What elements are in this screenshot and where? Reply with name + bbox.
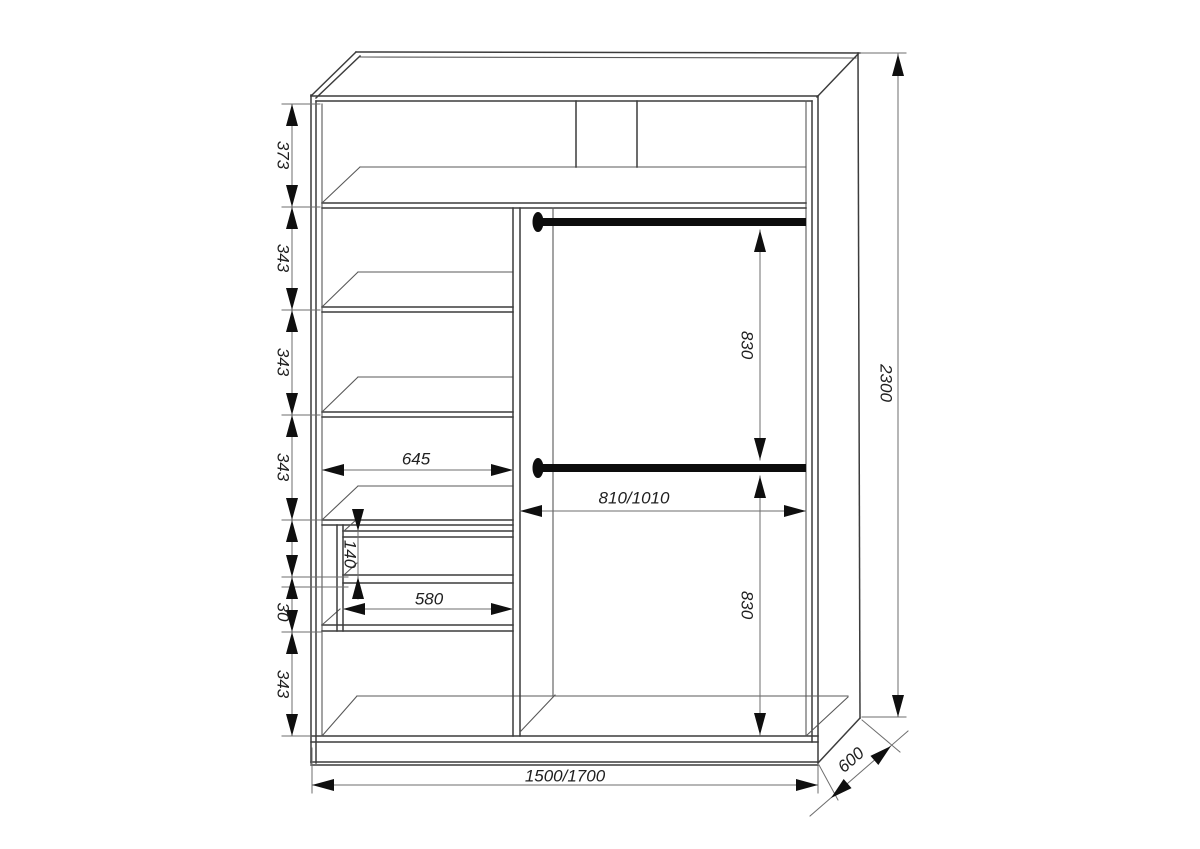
cabinet-outline — [311, 52, 860, 765]
wardrobe-drawing-page: 373 343 343 343 30 343 140 645 580 810/1… — [0, 0, 1200, 849]
hanging-rod-lower — [543, 464, 806, 472]
dim-label-343-1: 343 — [274, 244, 293, 273]
dim-label-30: 30 — [274, 603, 293, 622]
dim-label-830-upper: 830 — [738, 331, 757, 360]
shelves — [322, 101, 806, 631]
dimension-depth: 600 — [810, 720, 908, 816]
dim-label-600: 600 — [834, 743, 868, 776]
dim-label-810-1010: 810/1010 — [599, 489, 670, 508]
dimension-drawer-width: 580 — [343, 590, 513, 616]
dim-label-343-3: 343 — [274, 453, 293, 482]
hanging-rod-upper — [543, 218, 806, 226]
dimension-drawer-gap: 140 — [341, 509, 365, 599]
dim-label-140: 140 — [341, 540, 360, 569]
dimension-shelf-width: 645 — [322, 450, 513, 477]
rod-end-cap-upper — [533, 212, 544, 232]
dim-label-2300: 2300 — [877, 363, 896, 402]
dimension-hanging-drops: 830 830 — [738, 230, 767, 735]
dimension-overall-width: 1500/1700 — [312, 748, 818, 793]
dim-label-343-2: 343 — [274, 348, 293, 377]
dim-label-830-lower: 830 — [738, 591, 757, 620]
dim-label-373: 373 — [274, 141, 293, 170]
dim-label-1500-1700: 1500/1700 — [525, 767, 606, 786]
dim-label-580: 580 — [415, 590, 444, 609]
dimension-overall-height: 2300 — [860, 53, 906, 717]
wardrobe-dimension-drawing: 373 343 343 343 30 343 140 645 580 810/1… — [0, 0, 1200, 849]
rod-end-cap-lower — [533, 458, 544, 478]
dim-label-645: 645 — [402, 450, 431, 469]
dim-label-343-4: 343 — [274, 670, 293, 699]
